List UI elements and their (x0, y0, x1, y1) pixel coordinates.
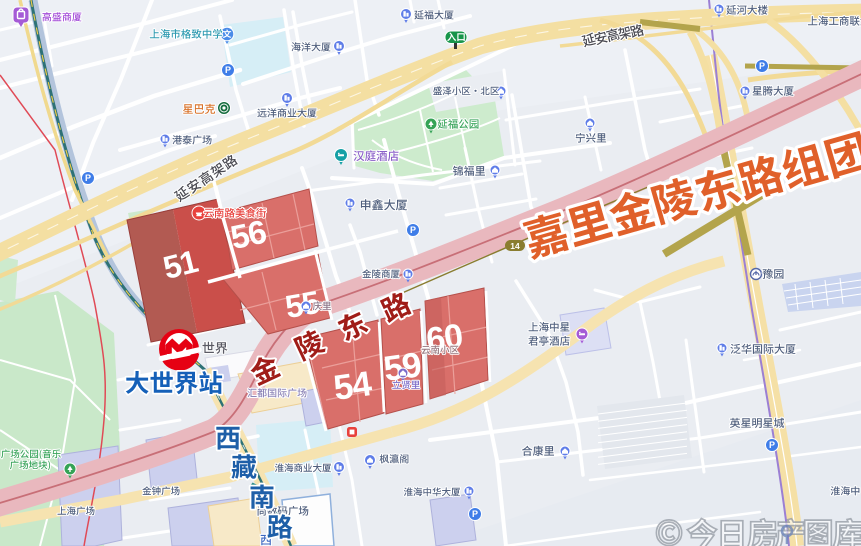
svg-text:P: P (472, 509, 478, 519)
svg-text:14: 14 (510, 241, 520, 251)
svg-text:54: 54 (331, 364, 375, 408)
svg-text:P: P (410, 225, 416, 235)
svg-text:P: P (85, 173, 91, 183)
svg-text:P: P (225, 65, 231, 75)
svg-text:P: P (759, 61, 765, 71)
svg-text:P: P (769, 440, 775, 450)
